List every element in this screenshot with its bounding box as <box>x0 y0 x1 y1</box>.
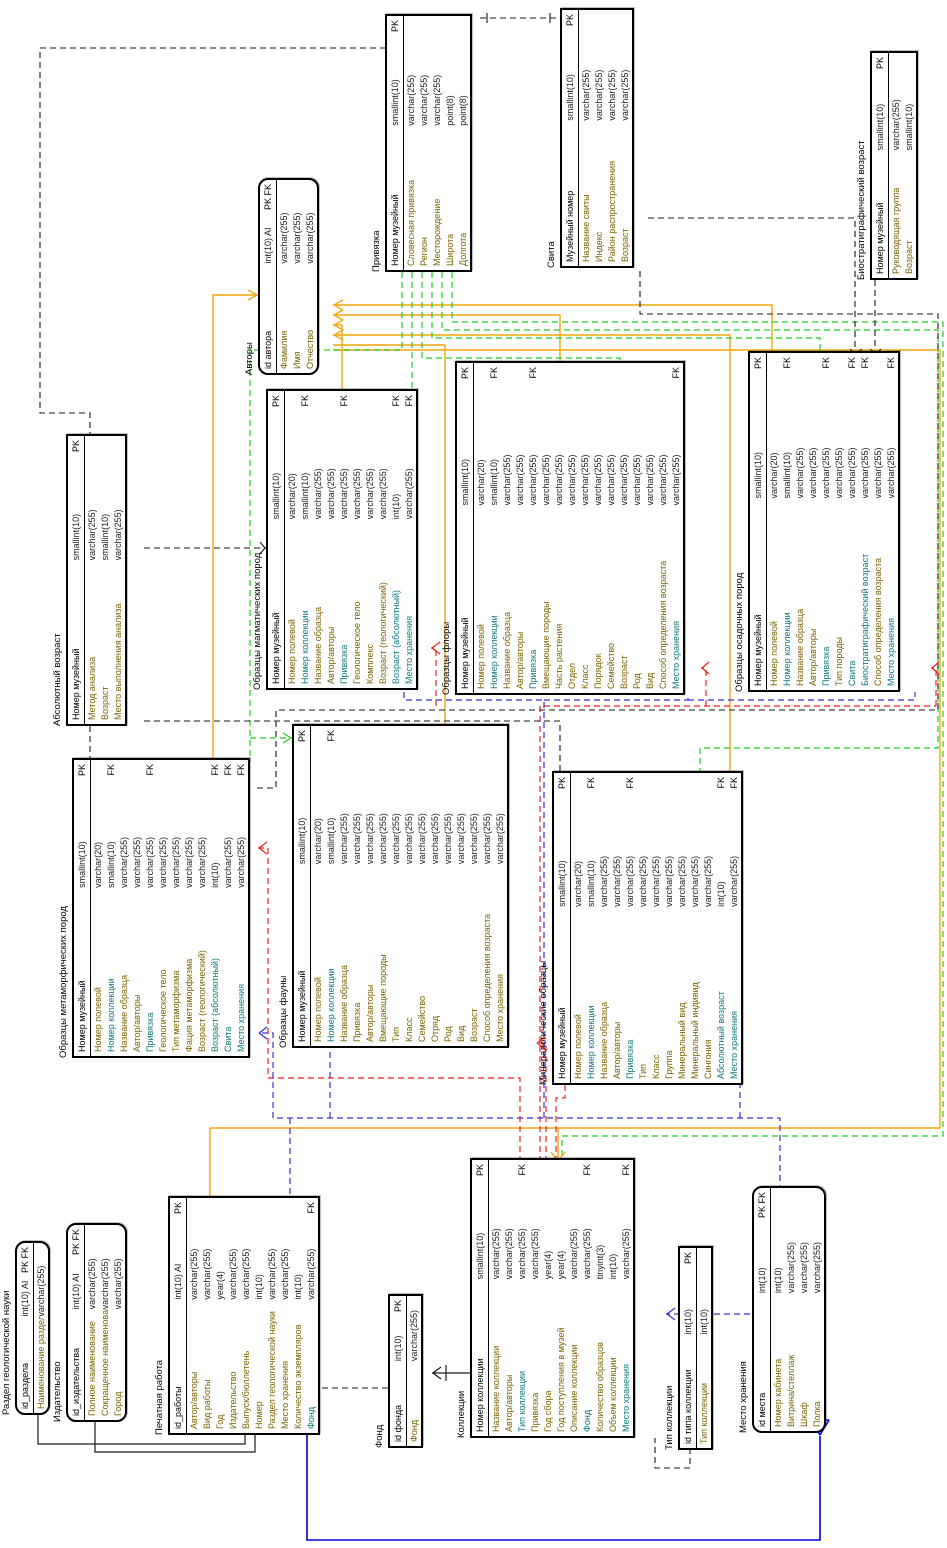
field-type: varchar(255) <box>606 14 619 121</box>
field-name: Фамилия <box>278 264 291 369</box>
field-name: Вид работы <box>201 1300 214 1429</box>
field-name: Автор/авторы <box>611 907 624 1079</box>
field-name: Номер коллекции <box>105 888 118 1052</box>
table-mesto-field-row: Шкафvarchar(255) <box>798 1188 811 1431</box>
table-pechat-field-row: Годyear(4) <box>214 1198 227 1433</box>
table-izdat-field-row: Городvarchar(255) <box>112 1225 125 1420</box>
table-osad-field-row: Привязкаvarchar(255)FK <box>820 353 833 690</box>
field-key-flag: PK <box>680 1252 696 1264</box>
relationship-line <box>431 648 436 706</box>
table-magma-field-row: Комплексvarchar(255) <box>364 391 377 688</box>
field-key-flag: FK <box>846 357 859 369</box>
field-type: varchar(255) <box>377 395 390 519</box>
table-izdat-field-row: Сокращенное наименованиеvarchar(255) <box>99 1225 112 1420</box>
table-label-fond: Фонд <box>374 1425 385 1448</box>
table-kollekcii-field-row: Привязкаvarchar(255) <box>529 1160 542 1436</box>
field-type: varchar(255) <box>846 372 859 499</box>
field-name: Геологическое тело <box>351 519 364 684</box>
field-type: int(10) AI <box>17 1276 33 1317</box>
field-type: smallint(10) <box>750 372 766 498</box>
table-biostrat-pk-row: Номер музейныйsmallint(10)PK <box>872 53 889 278</box>
table-mesto-pk-row: id местаint(10)PK FK <box>754 1188 771 1431</box>
table-avtory: id автораint(10) AIPK FKФамилияvarchar(2… <box>258 178 319 375</box>
table-mesto-field-row: Полкаvarchar(255) <box>811 1188 824 1431</box>
field-type: smallint(10) <box>387 35 403 126</box>
field-name: Район распространения <box>606 121 619 262</box>
field-type: varchar(255) <box>86 1229 99 1309</box>
field-type: varchar(255) <box>540 367 553 505</box>
table-minera-field-row: Автор/авторыvarchar(255) <box>611 773 624 1083</box>
table-fauna-field-row: Автор/авторыvarchar(255) <box>364 726 377 1046</box>
field-key-flag: FK <box>527 367 540 379</box>
field-name: Класс <box>650 907 663 1079</box>
table-avtory-field-row: Имяvarchar(255) <box>291 180 304 373</box>
field-type: int(10) <box>209 779 222 888</box>
table-magma-field-row: Возраст (абсолютный)int(10)FK <box>390 391 403 688</box>
field-name: Номер коллекции <box>585 907 598 1079</box>
table-flora-field-row: Часть растенияvarchar(255) <box>553 363 566 693</box>
field-key-flag: PK <box>562 14 578 26</box>
table-biostrat-field-row: Возрастsmallint(10) <box>903 53 916 278</box>
field-key-flag: FK <box>715 777 728 789</box>
table-fauna-field-row: Способ определения возрастаvarchar(255) <box>481 726 494 1046</box>
table-label-avtory: Авторы <box>244 342 255 375</box>
field-name: Автор/авторы <box>325 519 338 684</box>
field-name: Место хранения <box>494 864 507 1042</box>
er-diagram-canvas: ПривязкаНомер музейныйsmallint(10)PKСлов… <box>0 0 947 1548</box>
field-type: varchar(255) <box>188 1202 201 1300</box>
field-name: Номер музейный <box>74 888 90 1052</box>
table-tip_kollekcii: id типа коллекцииint(10)PKТип коллекцииi… <box>678 1246 713 1450</box>
field-name: id_издательства <box>68 1309 84 1416</box>
table-flora-field-row: Способ определения возрастаvarchar(255) <box>657 363 670 693</box>
field-name: id фонда <box>390 1361 406 1442</box>
table-avtory-pk-row: id автораint(10) AIPK FK <box>260 180 277 373</box>
field-name: Отдел <box>566 505 579 689</box>
table-pechat-field-row: Место храненияvarchar(255) <box>279 1198 292 1433</box>
table-minera-field-row: Привязкаvarchar(255)FK <box>624 773 637 1083</box>
field-name: Семейство <box>416 864 429 1042</box>
field-key-flag: FK <box>209 764 222 776</box>
field-name: Название образца <box>338 864 351 1042</box>
field-name: Раздел геологической науки <box>266 1300 279 1429</box>
field-name: Номер полевой <box>768 498 781 686</box>
table-flora-field-row: Автор/авторыvarchar(255) <box>514 363 527 693</box>
field-name: Шкаф <box>798 1293 811 1427</box>
field-type: varchar(255) <box>377 730 390 864</box>
field-name: Номер коллекции <box>488 505 501 689</box>
table-metamorf-field-row: Возраст (геологический)varchar(255) <box>196 760 209 1056</box>
table-minera-field-row: Название образцаvarchar(255) <box>598 773 611 1083</box>
field-name: Номер музейный <box>457 505 473 689</box>
field-name: Место хранения <box>235 888 248 1052</box>
field-name: Тип коллекции <box>516 1279 529 1432</box>
field-name: Способ определения возраста <box>657 505 670 689</box>
field-type: varchar(255) <box>620 1179 633 1280</box>
table-metamorf-field-row: Номер полевойvarchar(20) <box>92 760 105 1056</box>
field-name: Год поступления в музей <box>555 1279 568 1432</box>
table-pechat-field-row: Фондvarchar(255)FK <box>305 1198 318 1433</box>
field-type: smallint(10) <box>99 440 112 560</box>
table-privyazka-field-row: Долготаpoint(8) <box>457 16 470 270</box>
field-key-flag: FK <box>781 357 794 369</box>
field-type: varchar(255) <box>144 779 157 888</box>
field-key-flag: PK FK <box>260 184 276 210</box>
field-type: smallint(10) <box>872 72 888 150</box>
table-metamorf-field-row: Возраст (абсолютный)int(10)FK <box>209 760 222 1056</box>
table-metamorf-field-row: Свитаvarchar(255)FK <box>222 760 235 1056</box>
field-name: Название образца <box>501 505 514 689</box>
field-type: varchar(255) <box>663 777 676 907</box>
field-name: Количество образцов <box>594 1279 607 1432</box>
field-type: smallint(10) <box>472 1179 488 1279</box>
field-name: Витрина/стеллаж <box>785 1293 798 1427</box>
table-label-izdat: Издательство <box>52 1361 63 1422</box>
field-name: Номер музейный <box>554 907 570 1079</box>
field-name: Фонд <box>305 1300 318 1429</box>
field-key-flag: FK <box>728 777 741 789</box>
field-key-flag: PK <box>457 367 473 379</box>
field-name: Возраст (абсолютный) <box>390 519 403 684</box>
field-type: varchar(255) <box>312 395 325 519</box>
field-key-flag: FK <box>820 357 833 369</box>
field-name: Издательство <box>227 1300 240 1429</box>
field-name: Привязка <box>338 519 351 684</box>
table-abs_vozrast-field-row: Возрастsmallint(10) <box>99 436 112 724</box>
field-name: Возраст (абсолютный) <box>209 888 222 1052</box>
table-tip_kollekcii-field-row: Тип коллекцииint(10) <box>698 1248 711 1448</box>
field-name: Возраст <box>99 560 112 720</box>
table-svita-field-row: Возрастvarchar(255) <box>619 10 632 266</box>
field-key-flag: FK <box>885 357 898 369</box>
field-type: smallint(10) <box>488 382 501 506</box>
field-type: varchar(255) <box>131 764 144 888</box>
field-name: Привязка <box>351 864 364 1042</box>
field-name: Фонд <box>581 1279 594 1432</box>
field-name: Свита <box>846 498 859 686</box>
field-type: varchar(255) <box>618 367 631 505</box>
table-minera-field-row: Место храненияvarchar(255)FK <box>728 773 741 1083</box>
table-flora-field-row: Семействоvarchar(255) <box>605 363 618 693</box>
field-name: Номер коллекции <box>299 519 312 684</box>
table-fauna-field-row: Видvarchar(255) <box>455 726 468 1046</box>
table-fauna-pk-row: Номер музейныйsmallint(10)PK <box>294 726 311 1046</box>
field-name: Название образца <box>794 498 807 686</box>
field-key-flag: FK <box>581 1164 594 1176</box>
field-type: varchar(20) <box>312 730 325 864</box>
field-type: varchar(255) <box>785 1192 798 1293</box>
field-type: varchar(255) <box>35 1247 48 1317</box>
table-osad-field-row: Номер коллекцииsmallint(10)FK <box>781 353 794 690</box>
field-type: smallint(10) <box>562 29 578 121</box>
field-type: smallint(10) <box>105 779 118 888</box>
field-type: int(10) AI <box>68 1258 84 1309</box>
field-type: varchar(255) <box>338 410 351 520</box>
field-type: varchar(255) <box>605 367 618 505</box>
table-label-magma: Образцы магматических пород <box>252 553 263 690</box>
field-name: Автор/авторы <box>807 498 820 686</box>
field-key-flag: FK <box>305 1202 318 1214</box>
table-kollekcii-field-row: Название коллекцииvarchar(255) <box>490 1160 503 1436</box>
table-kollekcii-pk-row: Номер коллекцииsmallint(10)PK <box>472 1160 489 1436</box>
field-type: varchar(255) <box>859 372 872 499</box>
table-privyazka-field-row: Широтаpoint(8) <box>444 16 457 270</box>
field-type: varchar(255) <box>222 779 235 888</box>
field-name: id_работы <box>170 1300 186 1429</box>
table-kollekcii-field-row: Количество образцовtinyint(3) <box>594 1160 607 1436</box>
table-metamorf-field-row: Автор/авторыvarchar(255) <box>131 760 144 1056</box>
field-name: Порядок <box>592 505 605 689</box>
field-name: Долгота <box>457 126 470 266</box>
field-type: year(4) <box>555 1164 568 1279</box>
field-name: Сингония <box>702 907 715 1079</box>
field-name: Объем коллекции <box>607 1279 620 1432</box>
table-pechat-field-row: Номерint(10) <box>253 1198 266 1433</box>
table-tip_kollekcii-pk-row: id типа коллекцииint(10)PK <box>680 1248 697 1448</box>
field-name: Номер коллекции <box>325 864 338 1042</box>
field-name: Место хранения <box>403 519 416 684</box>
field-name: Комплекс <box>364 519 377 684</box>
table-magma-field-row: Геологическое телоvarchar(255) <box>351 391 364 688</box>
table-pechat-field-row: Вид работыvarchar(255) <box>201 1198 214 1433</box>
table-magma-field-row: Автор/авторыvarchar(255) <box>325 391 338 688</box>
table-kollekcii: Номер коллекцииsmallint(10)PKНазвание ко… <box>470 1158 635 1438</box>
field-name: Номер полевой <box>475 505 488 689</box>
field-type: varchar(255) <box>494 730 507 864</box>
field-name: Словесная привязка <box>405 126 418 266</box>
table-osad-pk-row: Номер музейныйsmallint(10)PK <box>750 353 767 690</box>
table-biostrat-field-row: Руководящая группаvarchar(255) <box>890 53 903 278</box>
field-name: Вид <box>455 864 468 1042</box>
field-name: Фонд <box>408 1361 421 1442</box>
relationship-line <box>544 695 688 700</box>
field-type: varchar(255) <box>338 730 351 864</box>
table-izdat-field-row: Полное наименованиеvarchar(255) <box>86 1225 99 1420</box>
field-name: Год <box>214 1300 227 1429</box>
table-magma-field-row: Место храненияvarchar(255)FK <box>403 391 416 688</box>
field-type: varchar(255) <box>798 1192 811 1293</box>
field-name: Номер музейный <box>294 864 310 1042</box>
field-name: Место хранения <box>728 907 741 1079</box>
field-type: varchar(255) <box>468 730 481 864</box>
field-type: int(10) <box>680 1267 696 1335</box>
field-type: point(8) <box>457 20 470 126</box>
table-pechat-pk-row: id_работыint(10) AIPK <box>170 1198 187 1433</box>
field-type: varchar(255) <box>631 367 644 505</box>
table-minera-field-row: Типvarchar(255) <box>637 773 650 1083</box>
table-metamorf-field-row: Тип метаморфизмаvarchar(255) <box>170 760 183 1056</box>
field-name: Имя <box>291 264 304 369</box>
field-type: varchar(255) <box>689 777 702 907</box>
relationship-line <box>688 692 915 700</box>
field-type: int(10) <box>698 1252 711 1335</box>
table-kollekcii-field-row: Фондvarchar(255)FK <box>581 1160 594 1436</box>
field-name: Геологическое тело <box>157 888 170 1052</box>
field-key-flag: PK <box>750 357 766 369</box>
field-key-flag: PK <box>554 777 570 789</box>
table-kollekcii-field-row: Место храненияvarchar(255)FK <box>620 1160 633 1436</box>
field-type: varchar(255) <box>637 777 650 907</box>
table-label-flora: Образцы флоры <box>441 622 452 695</box>
field-key-flag: PK <box>872 57 888 69</box>
table-fauna-field-row: Семействоvarchar(255) <box>416 726 429 1046</box>
table-abs_vozrast-field-row: Место выполнения анализаvarchar(255) <box>112 436 125 724</box>
field-type: varchar(255) <box>490 1164 503 1279</box>
field-name: id автора <box>260 264 276 369</box>
table-fauna-field-row: Название образцаvarchar(255) <box>338 726 351 1046</box>
field-name: Номер полевой <box>572 907 585 1079</box>
field-name: Количество экземпляров <box>292 1300 305 1429</box>
table-metamorf: Номер музейныйsmallint(10)PKНомер полево… <box>72 758 250 1058</box>
field-type: varchar(20) <box>92 764 105 888</box>
table-metamorf-pk-row: Номер музейныйsmallint(10)PK <box>74 760 91 1056</box>
field-name: Название коллекции <box>490 1279 503 1432</box>
field-key-flag: PK <box>68 440 84 452</box>
table-label-privyazka: Привязка <box>371 230 382 272</box>
table-metamorf-field-row: Название образцаvarchar(255) <box>118 760 131 1056</box>
field-type: varchar(255) <box>514 367 527 505</box>
field-type: varchar(255) <box>112 440 125 560</box>
table-osad-field-row: Место храненияvarchar(255)FK <box>885 353 898 690</box>
field-name: Возраст <box>903 150 916 274</box>
field-type: varchar(255) <box>644 367 657 505</box>
er-diagram-viewport: ПривязкаНомер музейныйsmallint(10)PKСлов… <box>0 0 947 1548</box>
field-type: smallint(10) <box>325 745 338 865</box>
field-type: varchar(255) <box>890 57 903 150</box>
table-magma-field-row: Привязкаvarchar(255)FK <box>338 391 351 688</box>
field-name: Номер полевой <box>286 519 299 684</box>
field-type: varchar(255) <box>702 777 715 907</box>
table-svita-field-row: Название свитыvarchar(255) <box>580 10 593 266</box>
field-key-flag: FK <box>338 395 351 407</box>
table-kollekcii-field-row: Год сбораyear(4) <box>542 1160 555 1436</box>
field-type: varchar(255) <box>325 395 338 519</box>
table-fond-field-row: Фондvarchar(255) <box>408 1296 421 1446</box>
field-type: varchar(255) <box>650 777 663 907</box>
field-type: varchar(255) <box>885 372 898 499</box>
field-type: varchar(255) <box>833 357 846 498</box>
table-minera-field-row: Классvarchar(255) <box>650 773 663 1083</box>
table-kollekcii-field-row: Объем коллекцииint(10) <box>607 1160 620 1436</box>
field-name: Минеральный вид <box>676 907 689 1079</box>
field-type: varchar(255) <box>581 1179 594 1280</box>
field-name: Полка <box>811 1293 824 1427</box>
table-minera-pk-row: Номер музейныйsmallint(10)PK <box>554 773 571 1083</box>
table-izdat: id_издательстваint(10) AIPK FKПолное наи… <box>66 1223 127 1422</box>
field-type: varchar(255) <box>431 20 444 126</box>
table-fauna-field-row: Привязкаvarchar(255) <box>351 726 364 1046</box>
field-type: varchar(255) <box>516 1179 529 1280</box>
field-name: Сокращенное наименование <box>99 1309 112 1416</box>
field-name: Класс <box>579 505 592 689</box>
field-type: varchar(255) <box>364 730 377 864</box>
field-type: int(10) <box>390 1315 406 1361</box>
table-label-svita: Свита <box>546 241 557 268</box>
field-name: Выпуск/бюллетень <box>240 1300 253 1429</box>
table-fond-pk-row: id фондаint(10)PK <box>390 1296 407 1446</box>
field-type: varchar(255) <box>201 1202 214 1300</box>
table-minera: Номер музейныйsmallint(10)PKНомер полево… <box>552 771 743 1085</box>
table-razdel: id_разделаint(10) AIPK FKНаименование ра… <box>15 1241 50 1415</box>
table-abs_vozrast-field-row: Метод анализаvarchar(255) <box>86 436 99 724</box>
relationship-line <box>931 668 936 706</box>
table-fauna-field-row: Место храненияvarchar(255) <box>494 726 507 1046</box>
field-type: varchar(255) <box>657 367 670 505</box>
field-type: smallint(10) <box>74 779 90 888</box>
field-type: varchar(255) <box>183 764 196 888</box>
field-key-flag: FK <box>299 395 312 407</box>
table-osad-field-row: Номер полевойvarchar(20) <box>768 353 781 690</box>
table-magma-pk-row: Номер музейныйsmallint(10)PK <box>268 391 285 688</box>
table-fauna-field-row: Родvarchar(255) <box>442 726 455 1046</box>
field-name: Автор/авторы <box>503 1279 516 1432</box>
field-type: tinyint(3) <box>594 1164 607 1279</box>
table-label-kollekcii: Коллекции <box>456 1391 467 1438</box>
field-key-flag: FK <box>624 777 637 789</box>
field-type: varchar(255) <box>527 382 540 506</box>
field-type: varchar(255) <box>611 777 624 907</box>
table-label-pechat: Печатная работа <box>154 1360 165 1435</box>
relationship-line <box>258 1033 273 1118</box>
table-abs_vozrast-pk-row: Номер музейныйsmallint(10)PK <box>68 436 85 724</box>
field-type: varchar(255) <box>279 1202 292 1300</box>
field-type: varchar(255) <box>416 730 429 864</box>
field-type: varchar(255) <box>579 367 592 505</box>
relationship-line <box>307 1435 820 1540</box>
field-name: Индекс <box>593 121 606 262</box>
field-name: Свита <box>222 888 235 1052</box>
field-name: Год сбора <box>542 1279 555 1432</box>
table-kollekcii-field-row: Описание коллекцииvarchar(255) <box>568 1160 581 1436</box>
field-type: int(10) <box>292 1202 305 1300</box>
table-fauna-field-row: Типvarchar(255) <box>390 726 403 1046</box>
field-name: id_раздела <box>17 1317 33 1409</box>
table-osad-field-row: Автор/авторыvarchar(255) <box>807 353 820 690</box>
field-type: varchar(255) <box>403 410 416 520</box>
table-pechat: id_работыint(10) AIPKАвтор/авторыvarchar… <box>168 1196 320 1435</box>
field-type: varchar(255) <box>442 730 455 864</box>
field-type: int(10) <box>607 1164 620 1279</box>
field-name: Место хранения <box>670 505 683 689</box>
field-name: Тип <box>637 907 650 1079</box>
table-svita-field-row: Район распространенияvarchar(255) <box>606 10 619 266</box>
field-name: Способ определения возраста <box>872 498 885 686</box>
field-key-flag: FK <box>105 764 118 776</box>
table-label-razdel: Раздел геологической науки <box>1 1291 12 1415</box>
table-osad-field-row: Биостратиграфический возрастvarchar(255)… <box>859 353 872 690</box>
field-type: varchar(20) <box>475 367 488 505</box>
field-type: varchar(255) <box>676 777 689 907</box>
table-privyazka-field-row: Регионvarchar(255) <box>418 16 431 270</box>
table-svita-pk-row: Музейный номерsmallint(10)PK <box>562 10 579 266</box>
field-name: Автор/авторы <box>188 1300 201 1429</box>
field-type: varchar(255) <box>503 1164 516 1279</box>
field-type: varchar(255) <box>501 367 514 505</box>
field-key-flag: PK <box>387 20 403 32</box>
field-name: Номер музейный <box>268 519 284 684</box>
field-name: Автор/авторы <box>514 505 527 689</box>
table-minera-field-row: Номер полевойvarchar(20) <box>572 773 585 1083</box>
field-type: int(10) AI <box>170 1217 186 1300</box>
field-name: Вид <box>644 505 657 689</box>
table-kollekcii-field-row: Тип коллекцииvarchar(255)FK <box>516 1160 529 1436</box>
field-name: Возраст <box>468 864 481 1042</box>
table-flora-pk-row: Номер музейныйsmallint(10)PK <box>457 363 474 693</box>
table-minera-field-row: Сингонияvarchar(255) <box>702 773 715 1083</box>
field-name: Номер <box>253 1300 266 1429</box>
field-type: varchar(255) <box>235 779 248 888</box>
field-type: int(10) <box>715 792 728 907</box>
